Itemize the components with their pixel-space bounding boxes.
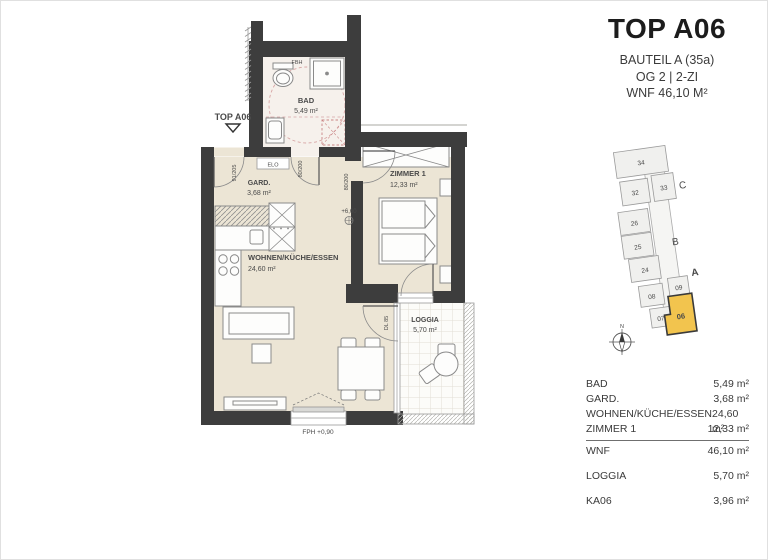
fbh-label: FBH xyxy=(292,60,303,66)
room-area-wohnen: 24,60 m² xyxy=(248,266,276,273)
entrance-marker: TOP A06 xyxy=(215,112,252,132)
room-area-gard: 3,68 m² xyxy=(247,190,271,197)
row-value: 3,96 m² xyxy=(713,494,749,509)
header-wnf: WNF 46,10 M² xyxy=(569,85,765,102)
table-separator xyxy=(586,440,749,441)
loggia-railing xyxy=(398,414,474,424)
row-value: 3,68 m² xyxy=(713,392,749,407)
row-label: KA06 xyxy=(586,494,612,509)
table-row: ZIMMER 1 12,33 m² xyxy=(586,422,749,437)
loggia-door-size: DL 85 xyxy=(384,316,390,330)
entrance-door-size: 91/205 xyxy=(232,165,238,182)
toilet-icon xyxy=(273,63,293,87)
room-label-zimmer: ZIMMER 1 xyxy=(390,169,426,178)
room-area-zimmer: 12,33 m² xyxy=(390,182,418,189)
table-row: GARD. 3,68 m² xyxy=(586,392,749,407)
table-row: BAD 5,49 m² xyxy=(586,377,749,392)
svg-text:24: 24 xyxy=(641,267,650,275)
table-loggia-row: LOGGIA 5,70 m² xyxy=(586,469,749,484)
svg-text:25: 25 xyxy=(634,244,643,252)
table-ka-row: KA06 3,96 m² xyxy=(586,494,749,509)
room-area-bad: 5,49 m² xyxy=(294,108,318,115)
bath-door-size: 80/200 xyxy=(298,161,304,178)
room-label-bad: BAD xyxy=(298,96,315,105)
sideboard-icon xyxy=(224,397,286,410)
table-total-row: WNF 46,10 m² xyxy=(586,444,749,459)
minimap-section-b: B xyxy=(671,236,679,248)
sofa-icon xyxy=(223,307,294,339)
svg-text:09: 09 xyxy=(675,284,684,292)
svg-text:08: 08 xyxy=(648,293,657,301)
area-table: BAD 5,49 m² GARD. 3,68 m² WOHNEN/KÜCHE/E… xyxy=(586,377,749,509)
page-title: TOP A06 xyxy=(569,13,765,45)
minimap-unit-06-label: 06 xyxy=(676,311,686,321)
header-bauteil: BAUTEIL A (35a) xyxy=(569,52,765,69)
row-label: LOGGIA xyxy=(586,469,626,484)
svg-text:33: 33 xyxy=(660,185,669,193)
svg-text:26: 26 xyxy=(630,220,639,228)
washbasin-icon xyxy=(266,118,284,143)
room-label-loggia: LOGGIA xyxy=(411,317,439,324)
minimap-section-a: A xyxy=(691,267,700,279)
row-value: 12,33 m² xyxy=(708,422,749,437)
entrance-label: TOP A06 xyxy=(215,112,252,122)
row-label: WNF xyxy=(586,444,610,459)
loggia-railing xyxy=(464,303,474,424)
sink-icon xyxy=(250,230,263,244)
row-value: 5,49 m² xyxy=(713,377,749,392)
floorplan-page: TOP A06 +6,60 BAD 5,49 m² GARD. 3,68 m² … xyxy=(0,0,768,560)
row-value: 5,70 m² xyxy=(713,469,749,484)
minimap-section-c: C xyxy=(678,180,687,192)
room-label-wohnen: WOHNEN/KÜCHE/ESSEN xyxy=(248,253,338,262)
svg-text:+6,60: +6,60 xyxy=(341,209,357,215)
svg-text:32: 32 xyxy=(631,190,640,198)
site-minimap: 34 32 33 26 25 24 08 09 07 06 C B A xyxy=(609,143,706,339)
row-value: 46,10 m² xyxy=(708,444,749,459)
side-table-icon xyxy=(252,344,271,363)
header-floor-type: OG 2 | 2-ZI xyxy=(569,69,765,86)
row-value: 24,60 m² xyxy=(712,407,749,422)
shower-icon xyxy=(310,58,344,89)
table-row: WOHNEN/KÜCHE/ESSEN 24,60 m² xyxy=(586,407,749,422)
header-block: TOP A06 BAUTEIL A (35a) OG 2 | 2-ZI WNF … xyxy=(569,13,765,102)
row-label: BAD xyxy=(586,377,608,392)
room-area-loggia: 5,70 m² xyxy=(413,327,437,334)
bedroom-door-size: 80/200 xyxy=(344,174,350,191)
floor-level-label: FPH +0,90 xyxy=(302,429,334,436)
elo-label: ELO xyxy=(267,163,279,169)
entrance-arrow-icon xyxy=(226,124,240,132)
row-label: GARD. xyxy=(586,392,619,407)
room-label-gard: GARD. xyxy=(248,180,271,187)
svg-text:07: 07 xyxy=(657,315,666,323)
svg-text:34: 34 xyxy=(637,159,646,167)
row-label: ZIMMER 1 xyxy=(586,422,636,437)
compass-icon: N xyxy=(609,324,635,355)
row-label: WOHNEN/KÜCHE/ESSEN xyxy=(586,407,712,422)
